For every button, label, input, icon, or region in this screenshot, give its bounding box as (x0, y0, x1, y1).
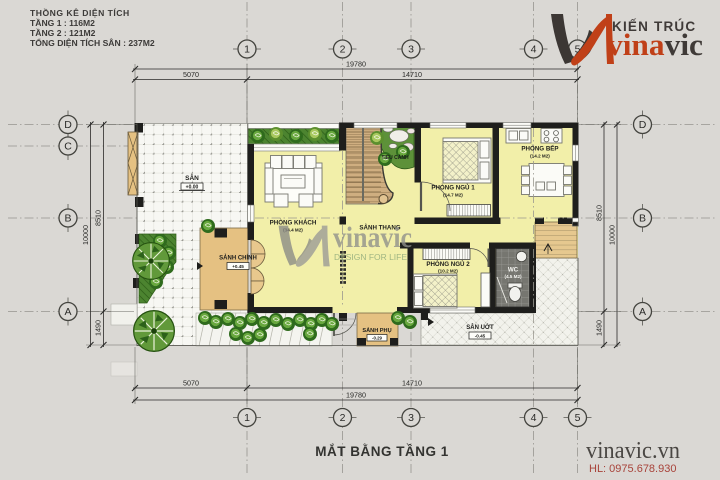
svg-text:14710: 14710 (402, 70, 422, 79)
svg-text:vinavic.vn: vinavic.vn (586, 438, 680, 464)
svg-text:5070: 5070 (183, 379, 199, 388)
svg-text:+0.45: +0.45 (232, 264, 244, 269)
svg-text:vinavic: vinavic (607, 27, 703, 62)
svg-text:PHÒNG NGỦ 2: PHÒNG NGỦ 2 (426, 260, 470, 268)
svg-text:SÂN UỚT: SÂN UỚT (466, 323, 494, 331)
svg-text:-0.45: -0.45 (475, 334, 486, 339)
svg-text:8510: 8510 (94, 210, 103, 226)
svg-text:TẦNG 2 : 121M2: TẦNG 2 : 121M2 (30, 28, 96, 38)
svg-text:(14.7 M2): (14.7 M2) (443, 193, 463, 198)
svg-text:1490: 1490 (595, 320, 604, 336)
svg-text:3: 3 (408, 44, 414, 56)
svg-text:10000: 10000 (81, 225, 90, 245)
svg-text:TIỂU CẢNH: TIỂU CẢNH (381, 154, 409, 161)
svg-text:19780: 19780 (346, 60, 366, 69)
svg-text:D: D (64, 119, 72, 131)
svg-text:14710: 14710 (402, 379, 422, 388)
svg-text:(14.2 M2): (14.2 M2) (530, 154, 550, 159)
svg-text:(10.2 M2): (10.2 M2) (438, 269, 458, 274)
svg-text:1490: 1490 (94, 320, 103, 336)
svg-text:SẢNH PHỤ: SẢNH PHỤ (362, 327, 391, 334)
svg-text:THỒNG KÊ DIỆN TÍCH: THỒNG KÊ DIỆN TÍCH (30, 7, 130, 18)
svg-text:TỔNG DIỆN TÍCH SÂN : 237M2: TỔNG DIỆN TÍCH SÂN : 237M2 (30, 37, 155, 48)
svg-text:3: 3 (408, 412, 414, 424)
svg-text:B: B (64, 213, 71, 225)
svg-text:4: 4 (531, 44, 537, 56)
svg-text:(4.5 M2): (4.5 M2) (504, 274, 522, 279)
svg-text:8510: 8510 (595, 205, 604, 221)
svg-text:PHÒNG NGỦ 1: PHÒNG NGỦ 1 (431, 184, 475, 192)
svg-text:PHÒNG KHÁCH: PHÒNG KHÁCH (270, 219, 317, 227)
svg-text:19780: 19780 (346, 391, 366, 400)
svg-text:vinavic: vinavic (333, 221, 412, 254)
svg-text:2: 2 (340, 412, 346, 424)
svg-text:C: C (64, 141, 72, 153)
svg-text:TẦNG 1 : 116M2: TẦNG 1 : 116M2 (30, 18, 95, 28)
svg-text:5: 5 (575, 412, 581, 424)
svg-text:1: 1 (244, 412, 250, 424)
svg-text:D: D (639, 119, 647, 131)
svg-text:DESIGN FOR LIFE: DESIGN FOR LIFE (334, 252, 407, 262)
svg-text:A: A (639, 306, 646, 318)
svg-text:MẮT BẰNG TẦNG 1: MẮT BẰNG TẦNG 1 (315, 444, 449, 459)
svg-text:PHÒNG BẾP: PHÒNG BẾP (521, 145, 558, 153)
svg-text:5070: 5070 (183, 70, 199, 79)
svg-text:2: 2 (340, 44, 346, 56)
svg-text:SẢNH CHÍNH: SẢNH CHÍNH (219, 254, 257, 262)
svg-text:10000: 10000 (608, 225, 617, 245)
svg-text:WC: WC (508, 267, 519, 274)
svg-text:-0.29: -0.29 (372, 336, 383, 341)
svg-text:HL: 0975.678.930: HL: 0975.678.930 (589, 463, 676, 475)
svg-text:1: 1 (244, 44, 250, 56)
svg-text:B: B (639, 213, 646, 225)
svg-text:+0.00: +0.00 (186, 185, 199, 191)
svg-text:A: A (64, 306, 71, 318)
svg-text:SÂN: SÂN (185, 173, 199, 182)
svg-text:4: 4 (531, 412, 537, 424)
